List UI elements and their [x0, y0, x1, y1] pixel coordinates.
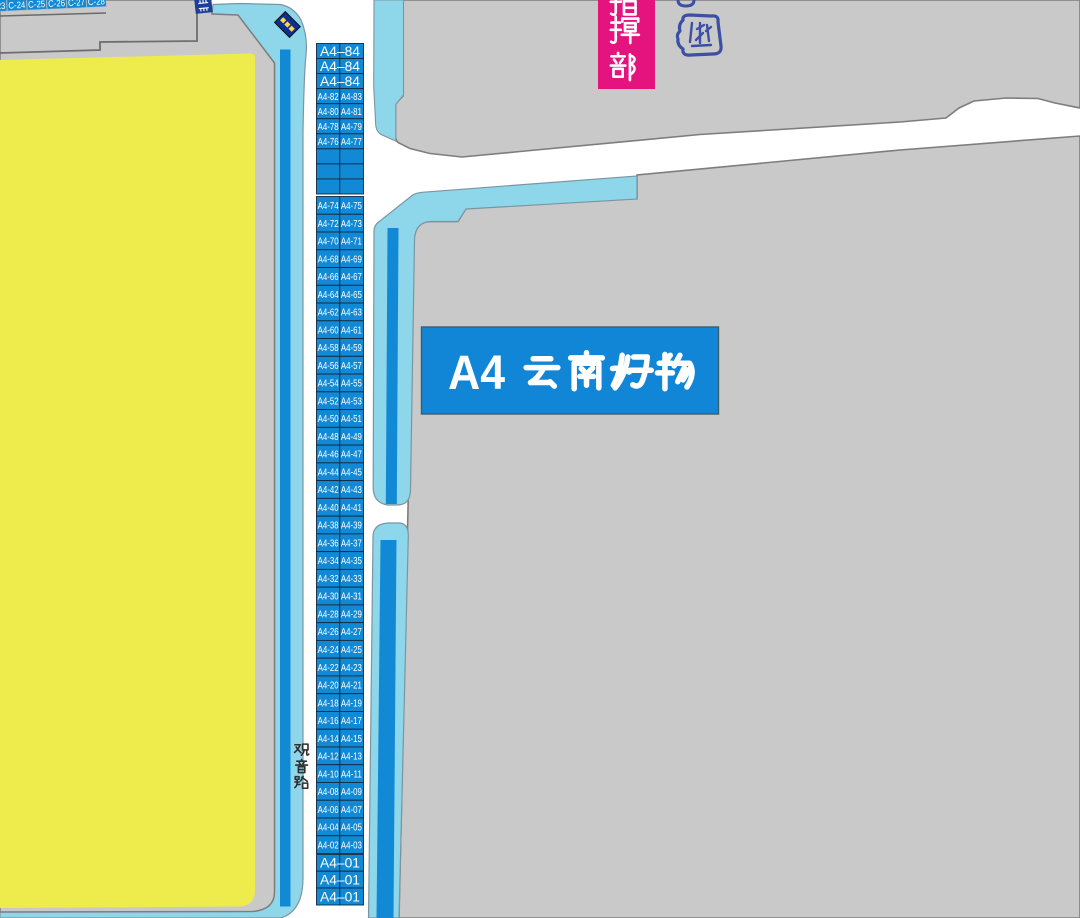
svg-text:A4-63: A4-63 [341, 307, 362, 319]
svg-text:A4-19: A4-19 [341, 697, 362, 709]
svg-text:A4-43: A4-43 [341, 484, 362, 496]
svg-text:A4-25: A4-25 [341, 644, 362, 656]
svg-text:A4-60: A4-60 [318, 324, 339, 336]
svg-text:C-28: C-28 [88, 0, 105, 7]
svg-text:A4-17: A4-17 [341, 715, 362, 727]
svg-text:A4-39: A4-39 [341, 520, 362, 532]
svg-text:A4-57: A4-57 [341, 360, 362, 372]
svg-text:A4-49: A4-49 [341, 431, 362, 443]
svg-text:A4-12: A4-12 [318, 751, 339, 763]
svg-text:A4-30: A4-30 [318, 591, 339, 603]
svg-text:A4-18: A4-18 [318, 697, 339, 709]
svg-text:A4-13: A4-13 [341, 751, 362, 763]
svg-text:A4-55: A4-55 [341, 378, 362, 390]
svg-text:A4-08: A4-08 [318, 786, 339, 798]
svg-text:A4-37: A4-37 [341, 538, 362, 550]
svg-text:A4-68: A4-68 [318, 253, 339, 265]
svg-text:A4-26: A4-26 [318, 626, 339, 638]
svg-text:A4-62: A4-62 [318, 307, 339, 319]
svg-text:A4-76: A4-76 [318, 136, 339, 148]
svg-text:A4-78: A4-78 [318, 121, 339, 133]
svg-text:A4-73: A4-73 [341, 218, 362, 230]
svg-text:A4-24: A4-24 [318, 644, 339, 656]
svg-text:A4-79: A4-79 [341, 121, 362, 133]
svg-text:A4-65: A4-65 [341, 289, 362, 301]
svg-text:A4–01: A4–01 [320, 889, 360, 904]
svg-text:A4-05: A4-05 [341, 822, 362, 834]
svg-text:A4-64: A4-64 [318, 289, 339, 301]
svg-text:A4–01: A4–01 [320, 856, 360, 871]
svg-text:A4-22: A4-22 [318, 662, 339, 674]
svg-text:A4-32: A4-32 [318, 573, 339, 585]
svg-text:A4-71: A4-71 [341, 236, 362, 248]
svg-text:A4–84: A4–84 [320, 74, 360, 89]
svg-text:A4-72: A4-72 [318, 218, 339, 230]
svg-text:A4-56: A4-56 [318, 360, 339, 372]
svg-text:A4-20: A4-20 [318, 680, 339, 692]
svg-text:A4-42: A4-42 [318, 484, 339, 496]
svg-text:A4: A4 [448, 347, 505, 400]
svg-text:A4-44: A4-44 [318, 466, 339, 478]
svg-text:A4-34: A4-34 [318, 555, 339, 567]
svg-text:A4-51: A4-51 [341, 413, 362, 425]
svg-text:A4–84: A4–84 [320, 59, 360, 74]
svg-text:A4-59: A4-59 [341, 342, 362, 354]
svg-text:A4-21: A4-21 [341, 680, 362, 692]
svg-text:A4-75: A4-75 [341, 200, 362, 212]
svg-text:A4-16: A4-16 [318, 715, 339, 727]
svg-text:A4-33: A4-33 [341, 573, 362, 585]
svg-text:A4-54: A4-54 [318, 378, 339, 390]
svg-text:A4-58: A4-58 [318, 342, 339, 354]
svg-text:C-23: C-23 [0, 0, 6, 12]
svg-text:C-24: C-24 [8, 0, 25, 11]
svg-text:A4-53: A4-53 [341, 395, 362, 407]
svg-text:A4-45: A4-45 [341, 466, 362, 478]
svg-text:A4–01: A4–01 [320, 872, 360, 887]
svg-text:A4-50: A4-50 [318, 413, 339, 425]
svg-text:A4-28: A4-28 [318, 609, 339, 621]
svg-text:A4-40: A4-40 [318, 502, 339, 514]
svg-text:A4-06: A4-06 [318, 804, 339, 816]
svg-text:C-27: C-27 [68, 0, 85, 8]
svg-text:A4-61: A4-61 [341, 324, 362, 336]
svg-text:A4-11: A4-11 [341, 768, 362, 780]
svg-text:A4-35: A4-35 [341, 555, 362, 567]
svg-text:A4-67: A4-67 [341, 271, 362, 283]
svg-text:A4-46: A4-46 [318, 449, 339, 461]
svg-text:A4-14: A4-14 [318, 733, 339, 745]
svg-text:C-25: C-25 [28, 0, 45, 10]
svg-text:C-26: C-26 [48, 0, 65, 9]
svg-text:A4-41: A4-41 [341, 502, 362, 514]
svg-text:A4-09: A4-09 [341, 786, 362, 798]
svg-text:A4-27: A4-27 [341, 626, 362, 638]
svg-text:A4-23: A4-23 [341, 662, 362, 674]
svg-text:A4-07: A4-07 [341, 804, 362, 816]
svg-text:A4-04: A4-04 [318, 822, 339, 834]
svg-text:A4-15: A4-15 [341, 733, 362, 745]
svg-text:A4-36: A4-36 [318, 538, 339, 550]
svg-text:A4-29: A4-29 [341, 609, 362, 621]
svg-text:A4-02: A4-02 [318, 839, 339, 851]
svg-text:A4-31: A4-31 [341, 591, 362, 603]
svg-text:A4-82: A4-82 [318, 91, 339, 103]
svg-text:A4-52: A4-52 [318, 395, 339, 407]
svg-text:A4-81: A4-81 [341, 106, 362, 118]
svg-text:A4-66: A4-66 [318, 271, 339, 283]
svg-text:A4–84: A4–84 [320, 44, 360, 59]
svg-text:A4-47: A4-47 [341, 449, 362, 461]
svg-text:A4-48: A4-48 [318, 431, 339, 443]
svg-text:A4-03: A4-03 [341, 839, 362, 851]
svg-text:A4-10: A4-10 [318, 768, 339, 780]
svg-text:A4-38: A4-38 [318, 520, 339, 532]
svg-text:A4-77: A4-77 [341, 136, 362, 148]
svg-text:A4-74: A4-74 [318, 200, 339, 212]
svg-text:A4-69: A4-69 [341, 253, 362, 265]
svg-text:A4-83: A4-83 [341, 91, 362, 103]
svg-text:A4-70: A4-70 [318, 236, 339, 248]
svg-text:A4-80: A4-80 [318, 106, 339, 118]
